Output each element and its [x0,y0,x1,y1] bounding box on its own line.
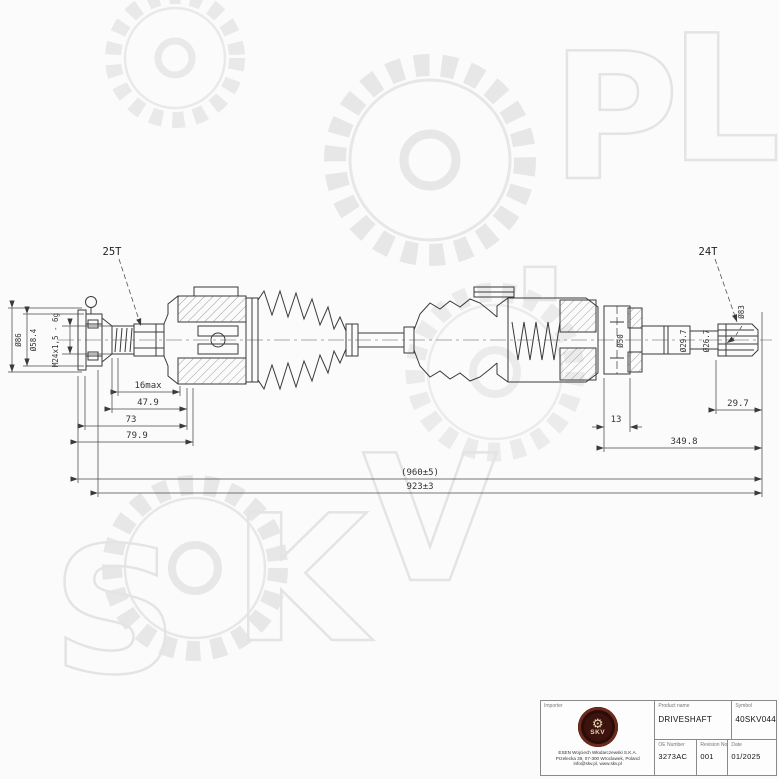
address-line: ESEN Wojciech Włodarczewski S.K.A. [556,750,640,756]
revision-label: Revision No [700,742,727,748]
spline-count-label: 25T [103,246,123,258]
dim-16max: 16max [118,358,180,396]
dim-label: Ø58.4 [29,328,38,351]
dim-label: Ø86 [14,333,23,347]
watermark-letter: L [669,0,779,202]
outer-cv-joint [164,287,246,384]
symbol-label: Symbol [735,703,776,709]
dim-dia-26-7-label: Ø26.7 [702,330,711,353]
watermark-letter: V [362,419,497,622]
watermark: S K V . P L [52,0,779,714]
title-block-row-2: OE Number 3273AC Revision No 001 Date 01… [655,740,776,775]
watermark-letter: K [232,479,373,682]
importer-cell: Importer ⚙ SKV ESEN Wojciech Włodarczews… [541,701,655,775]
symbol-value: 40SKV044 [735,715,776,724]
brand-logo: ⚙ SKV [578,707,618,747]
dim-label: Ø83 [737,305,746,319]
oe-number-value: 3273AC [658,752,696,761]
dim-label: 16max [134,381,162,391]
dim-label: 349.8 [670,437,697,447]
dim-label: 47.9 [137,398,159,408]
address-line: info@skv.pl, www.skv.pl [556,761,640,767]
revision-cell: Revision No 001 [697,740,728,775]
title-block: Importer ⚙ SKV ESEN Wojciech Włodarczews… [540,700,777,776]
date-cell: Date 01/2025 [728,740,776,775]
product-name-value: DRIVESHAFT [658,715,731,724]
dim-dia-50-label: Ø50 [616,334,625,348]
watermark-letter: P [551,17,679,220]
title-block-row-1: Product name DRIVESHAFT Symbol 40SKV044 [655,701,776,740]
snap-ring-band [194,287,238,296]
dim-dia-29-7-label: Ø29.7 [679,330,688,353]
date-label: Date [731,742,776,748]
gear-watermark-icon [113,0,237,120]
dim-label: 79.9 [126,431,148,441]
importer-label: Importer [544,703,563,709]
logo-gear-icon: ⚙ [592,719,604,729]
gear-watermark-icon [335,65,525,255]
dim-label: 13 [611,415,622,425]
product-name-label: Product name [658,703,731,709]
cotter-pin-ring [86,297,97,315]
dim-29-7-len: 29.7 [716,360,762,414]
product-name-cell: Product name DRIVESHAFT [655,701,732,739]
revision-value: 001 [700,752,727,761]
drawing-page: S K V . P L [0,0,779,779]
spline-count-label: 24T [699,246,719,258]
callout-spline-left: 25T [103,246,141,326]
dim-label: 29.7 [727,399,749,409]
dim-label: 73 [126,415,137,425]
logo-brand-text: SKV [590,729,605,736]
importer-address: ESEN Wojciech Włodarczewski S.K.A. Przel… [556,750,640,767]
dim-label: M24x1,5 - 6g [51,313,60,367]
date-value: 01/2025 [731,752,776,761]
watermark-letter: S [52,511,178,714]
callout-spline-right: 24T [699,246,737,322]
dim-label: (960±5) [401,468,439,478]
drawing-canvas: S K V . P L [0,0,779,779]
oe-number-cell: OE Number 3273AC [655,740,697,775]
dim-13: 13 [592,378,642,452]
title-block-right: Product name DRIVESHAFT Symbol 40SKV044 … [655,701,776,775]
oe-number-label: OE Number [658,742,696,748]
dim-label: 923±3 [406,482,433,492]
symbol-cell: Symbol 40SKV044 [732,701,776,739]
